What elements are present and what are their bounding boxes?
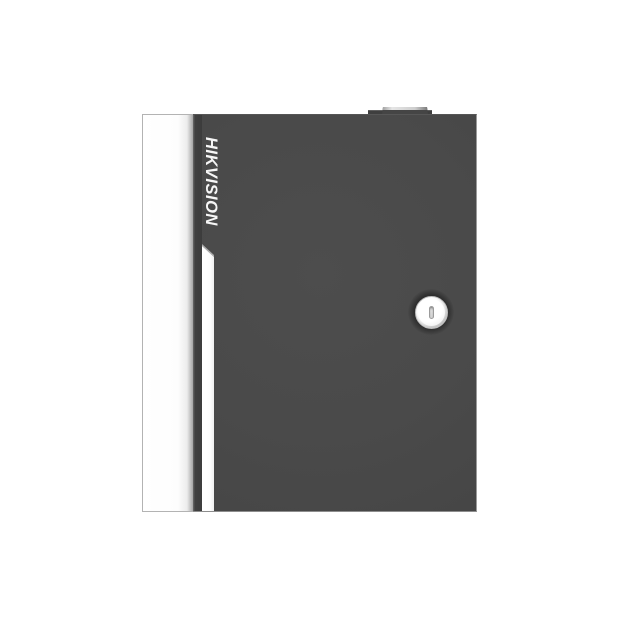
keyhole-icon [429,306,434,319]
brand-logo: HIKVISION [202,137,219,237]
enclosure-door: HIKVISION [193,114,477,512]
cam-lock [415,296,448,329]
accent-stripe [202,245,214,511]
lock-cylinder-face [418,299,445,326]
door-edge-shadow [193,115,202,511]
enclosure-side-panel [142,114,193,512]
product-photo: HIKVISION [0,0,620,620]
